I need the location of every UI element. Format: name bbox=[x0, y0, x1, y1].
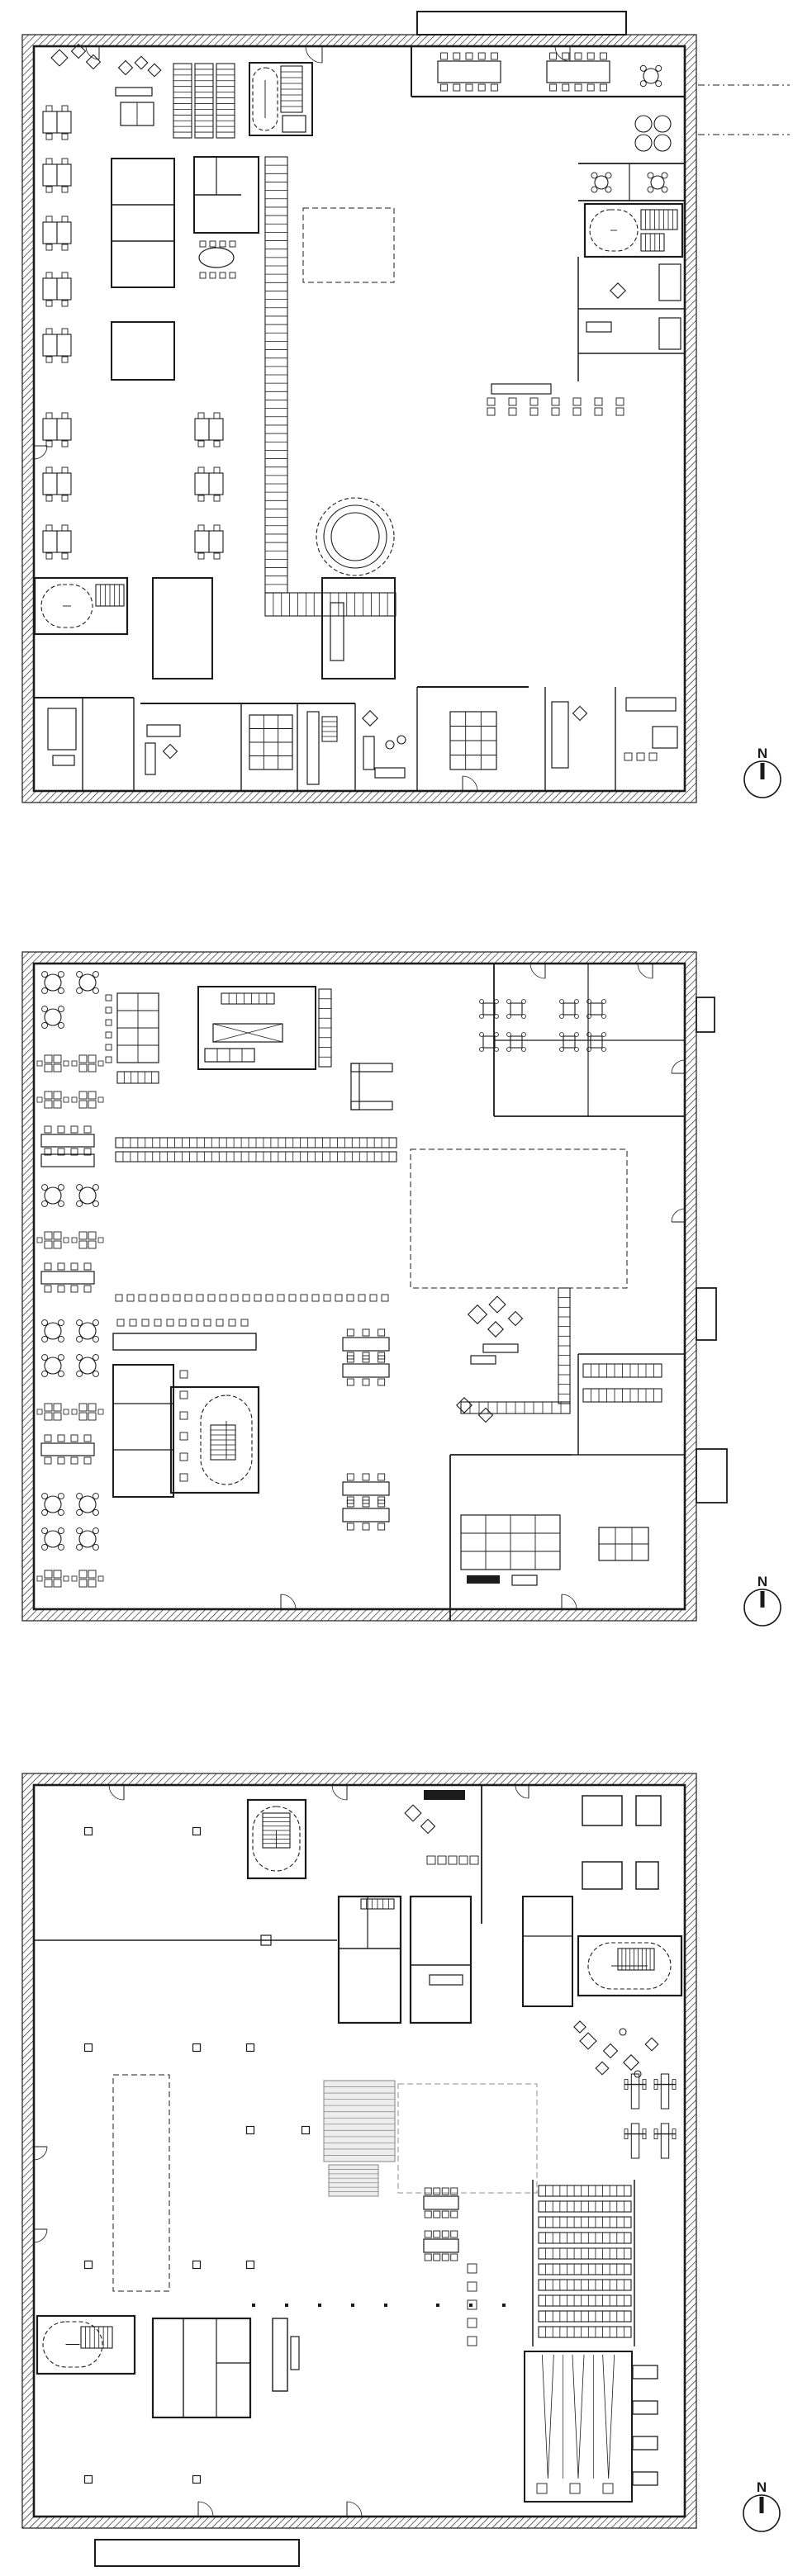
north-arrow-icon: N bbox=[744, 1574, 781, 1626]
north-arrow-icon: N bbox=[744, 746, 781, 798]
drawing-sheet: N N N bbox=[0, 0, 793, 2576]
floor-plan-3-svg: N bbox=[0, 1701, 793, 2576]
north-needle bbox=[760, 2497, 764, 2513]
north-arrow-icon: N bbox=[743, 2479, 780, 2531]
floor-plan-3-drawing: N bbox=[22, 1773, 780, 2566]
north-label: N bbox=[757, 2479, 767, 2495]
floor-plan-2-svg: N bbox=[0, 875, 793, 1701]
floor-plan-3: N bbox=[0, 1701, 793, 2576]
floor-plan-2-drawing: N bbox=[22, 952, 781, 1626]
floor-plan-1-drawing: N bbox=[22, 12, 790, 803]
north-needle bbox=[761, 763, 765, 779]
north-label: N bbox=[757, 1574, 767, 1589]
floor-plan-1-svg: N bbox=[0, 0, 793, 875]
north-label: N bbox=[757, 746, 767, 761]
floor-plan-2: N bbox=[0, 875, 793, 1701]
north-needle bbox=[761, 1591, 765, 1608]
floor-plan-1: N bbox=[0, 0, 793, 875]
